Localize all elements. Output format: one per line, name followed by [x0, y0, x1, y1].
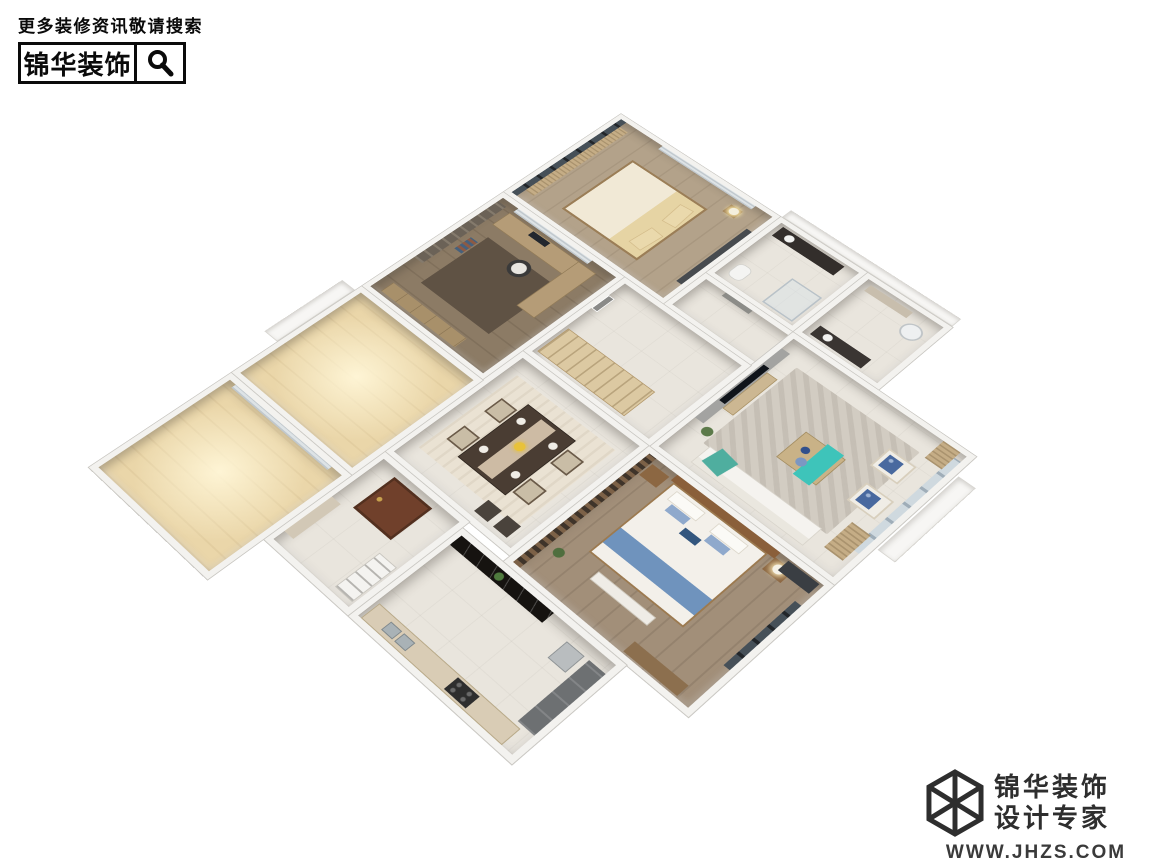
search-box: 锦华装饰 — [18, 42, 186, 84]
plate — [546, 441, 560, 451]
potted-plant — [550, 546, 567, 560]
accent-pillow — [679, 528, 702, 546]
cube-wireframe-logo-icon — [924, 767, 986, 839]
bath-vanity — [772, 227, 845, 276]
search-tagline: 更多装修资讯敬请搜索 — [18, 12, 203, 37]
armchair-blue-cushion — [878, 455, 904, 475]
door-handle — [375, 496, 383, 503]
footer-website: WWW.JHZS.COM — [924, 842, 1148, 864]
search-icon-cell — [134, 45, 183, 81]
master-bed — [562, 160, 708, 260]
plate — [509, 469, 523, 480]
bedroom-window — [723, 601, 801, 670]
footer-brand-subtitle: 设计专家 — [994, 803, 1110, 834]
search-banner: 更多装修资讯敬请搜索 锦华装饰 — [18, 12, 203, 84]
plate — [514, 416, 527, 426]
entry-door — [353, 477, 432, 540]
toilet — [726, 262, 754, 282]
footer-brand-name: 锦华装饰 — [994, 772, 1110, 803]
chair-cushion — [508, 261, 530, 277]
bed-pillow — [662, 204, 694, 228]
washing-machine — [894, 320, 927, 344]
armchair-blue-cushion — [855, 489, 881, 510]
kitchen-counter — [361, 603, 521, 745]
magnifier-icon — [145, 48, 175, 78]
hall-picture-frame — [591, 295, 614, 312]
dresser — [623, 641, 688, 696]
brand-footer: 锦华装饰 设计专家 WWW.JHZS.COM — [924, 767, 1148, 864]
tall-cabinet — [518, 660, 606, 736]
porcelain-jar — [799, 445, 813, 456]
floorplan-3d-render — [89, 114, 1050, 868]
plate — [477, 444, 491, 454]
bed-pillow — [629, 227, 664, 250]
brand-name-text: 锦华装饰 — [21, 45, 134, 81]
screenshot-root: { "branding_header": { "tagline": "更多装修资… — [0, 0, 1158, 868]
bed-sheet — [565, 162, 676, 238]
